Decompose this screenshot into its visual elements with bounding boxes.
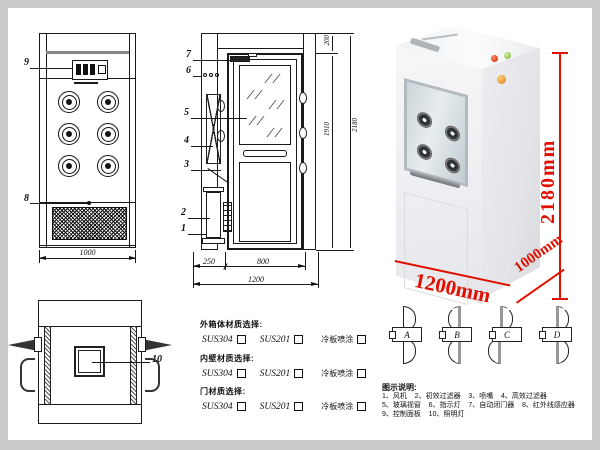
section-dim-1910: 1910	[324, 122, 331, 136]
photo-nozzle	[417, 110, 432, 129]
side-nozzle	[299, 127, 307, 139]
side-nozzle	[299, 92, 307, 104]
section-dim-800: 800	[243, 258, 283, 266]
material-option-label: SUS304	[202, 335, 233, 345]
leader-line-8	[30, 203, 88, 204]
material-row-outer: SUS304 SUS201 冷板喷涂	[202, 334, 366, 345]
prefilter-grid	[223, 202, 232, 232]
dim-line-1200	[193, 284, 318, 285]
photo-emergency-button	[497, 75, 506, 84]
leader-dot	[87, 201, 91, 205]
top-view-wall-hatch	[44, 326, 51, 404]
door-option-letter: D	[542, 327, 572, 342]
material-checkbox[interactable]	[357, 335, 366, 344]
section-dim-1200: 1200	[238, 276, 274, 284]
material-checkbox[interactable]	[237, 402, 246, 411]
material-checkbox[interactable]	[357, 369, 366, 378]
fan-base	[202, 238, 225, 244]
side-nozzle	[299, 162, 307, 174]
dim-arrow	[298, 264, 305, 268]
control-panel-button	[76, 64, 81, 75]
door-option-letter: C	[492, 327, 522, 342]
glass-hatch	[264, 74, 280, 83]
glass-hatch	[246, 90, 262, 99]
section-dim-2180: 2180	[352, 118, 359, 132]
front-view-right-wall-line	[129, 33, 130, 248]
material-checkbox[interactable]	[294, 402, 303, 411]
door-option-letter: B	[442, 327, 472, 342]
section-label-5: 5	[184, 108, 189, 118]
section-label-7: 7	[186, 50, 191, 60]
product-photo: 2180mm 1200mm 1000mm	[388, 12, 572, 304]
indicator-dot	[203, 73, 207, 77]
door-option-hinge	[439, 331, 446, 339]
glass-hatch	[248, 116, 264, 125]
material-option-label: SUS201	[260, 369, 291, 379]
dim-line-200	[332, 36, 333, 51]
section-label-6: 6	[186, 66, 191, 76]
ext-line	[316, 33, 354, 34]
section-right-wall	[303, 33, 316, 250]
leader-line-7	[193, 60, 230, 61]
hepa-filter-symbol	[206, 94, 221, 164]
front-label-grille: 8	[24, 194, 29, 204]
door-closer-device	[230, 56, 250, 62]
ext-line	[305, 252, 306, 270]
door-glass-window	[239, 65, 291, 145]
material-group-title-inner: 内壁材质选择:	[200, 353, 254, 364]
photo-nozzle	[445, 124, 460, 143]
indicator-dot	[215, 73, 219, 77]
material-option-label: 冷板喷涂	[321, 334, 353, 345]
dim-line-1910	[332, 56, 333, 248]
material-checkbox[interactable]	[357, 402, 366, 411]
nozzle	[58, 91, 80, 113]
door-lower-panel	[239, 162, 291, 242]
nozzle	[58, 155, 80, 177]
leader-line-3	[191, 170, 221, 171]
nozzle	[58, 123, 80, 145]
photo-nozzle	[417, 142, 432, 161]
photo-indicator-green	[504, 52, 511, 59]
door-option-C[interactable]: C	[490, 306, 526, 364]
control-panel-display	[98, 65, 106, 74]
photo-dim-line-height	[559, 52, 561, 300]
front-view-base-line	[39, 245, 136, 246]
dim-arrow	[311, 282, 318, 286]
handle-bracket-right	[145, 358, 160, 392]
section-dim-200: 200	[324, 35, 331, 46]
top-view-band-line	[38, 326, 142, 327]
section-label-1: 1	[181, 224, 186, 234]
control-panel-button	[90, 64, 95, 75]
indicator-dot	[209, 73, 213, 77]
legend-title: 图示说明:	[382, 382, 417, 393]
front-view-top-trim	[46, 51, 129, 54]
section-dim-250: 250	[195, 258, 223, 266]
photo-dim-tick	[552, 52, 568, 54]
material-option-label: SUS304	[202, 369, 233, 379]
material-option-label: SUS201	[260, 335, 291, 345]
door-option-hinge	[389, 331, 396, 339]
ext-line	[316, 250, 354, 251]
leader-line-10	[92, 362, 150, 363]
section-label-3: 3	[184, 160, 189, 170]
hinge-block-right	[138, 337, 146, 352]
return-air-grille	[52, 207, 127, 240]
material-row-door: SUS304 SUS201 冷板喷涂	[202, 401, 366, 412]
control-panel-underline	[74, 82, 98, 84]
section-label-2: 2	[181, 208, 186, 218]
front-view-left-wall-line	[46, 33, 47, 248]
ext-line	[318, 252, 319, 288]
top-view-wall-hatch	[130, 326, 137, 404]
leader-line-9	[30, 68, 72, 69]
leader-line-1	[188, 234, 206, 235]
material-checkbox[interactable]	[294, 369, 303, 378]
section-label-4: 4	[184, 136, 189, 146]
datasheet-canvas: 9 8 1000 7 6 5	[0, 0, 600, 450]
material-checkbox[interactable]	[237, 369, 246, 378]
door-option-B[interactable]: B	[440, 306, 476, 364]
material-group-title-outer: 外箱体材质选择:	[200, 319, 263, 330]
glass-hatch	[268, 100, 284, 109]
material-checkbox[interactable]	[294, 335, 303, 344]
front-label-control-panel: 9	[24, 58, 29, 68]
ext-line	[316, 53, 338, 54]
front-dim-width: 1000	[39, 249, 136, 257]
photo-indicator-red	[491, 55, 498, 62]
material-option-label: 冷板喷涂	[321, 401, 353, 412]
photo-nozzle	[445, 156, 460, 175]
nozzle	[97, 155, 119, 177]
control-panel-button	[83, 64, 88, 75]
hinge-block-left	[34, 337, 42, 352]
door-swing-arm-right	[142, 339, 172, 351]
leader-line-2	[188, 218, 210, 219]
leader-line-6	[193, 76, 201, 77]
material-option-label: 冷板喷涂	[321, 368, 353, 379]
dim-line-250-800	[193, 266, 305, 267]
door-vent-slot	[243, 150, 287, 157]
dim-line-2180	[350, 36, 351, 248]
legend-line-3: 9、控制面板 10、照明灯	[382, 411, 464, 418]
leader-line-5	[191, 118, 247, 119]
material-row-inner: SUS304 SUS201 冷板喷涂	[202, 368, 366, 379]
control-panel	[72, 60, 108, 80]
dim-arrow	[193, 282, 200, 286]
door-option-hinge	[489, 331, 496, 339]
nozzle	[97, 91, 119, 113]
door-option-D[interactable]: D	[540, 306, 576, 364]
material-checkbox[interactable]	[237, 335, 246, 344]
glass-hatch	[266, 128, 282, 137]
material-option-label: SUS304	[202, 402, 233, 412]
dim-line-1000	[39, 258, 136, 259]
material-option-label: SUS201	[260, 402, 291, 412]
photo-dim-tick	[552, 298, 568, 300]
door-option-A[interactable]: A	[390, 306, 426, 364]
legend-line-2: 5、玻璃视窗 6、指示灯 7、自动闭门器 8、红外线感应器	[382, 402, 575, 409]
handle-bracket-left	[20, 358, 35, 392]
material-group-title-door: 门材质选择:	[200, 386, 246, 397]
door-option-letter: A	[392, 327, 422, 342]
section-band-line	[201, 48, 316, 49]
fan-body	[206, 192, 221, 238]
leader-line-4	[191, 146, 213, 147]
nozzle	[97, 123, 119, 145]
top-view-band-line	[38, 404, 142, 405]
legend-line-1: 1、风机 2、初效过滤器 3、喷嘴 4、高效过滤器	[382, 393, 547, 400]
door-closer-arm	[248, 53, 257, 57]
door-option-hinge	[539, 331, 546, 339]
section-top-line	[201, 33, 316, 34]
